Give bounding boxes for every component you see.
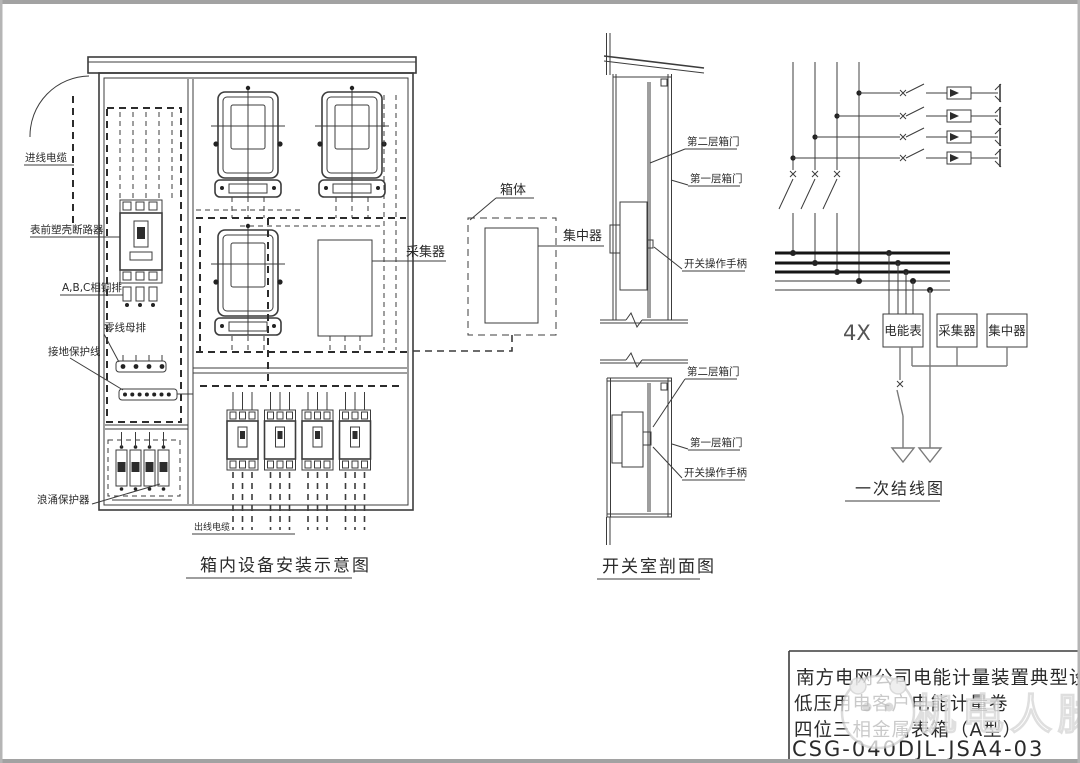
label-ground-wire: 接地保护线 [48, 345, 101, 358]
cad-drawing-canvas: 进线电缆 表前塑壳断路器 A,B,C相铜排 零线母排 接地保护线 浪涌保护器 出… [0, 0, 1080, 763]
label-collector-box: 采集器 [938, 323, 976, 338]
cabinet-installation-diagram: 进线电缆 表前塑壳断路器 A,B,C相铜排 零线母排 接地保护线 浪涌保护器 出… [24, 57, 446, 578]
label-concentrator-box: 集中器 [988, 323, 1026, 338]
caption-one-line: 一次结线图 [855, 479, 945, 498]
cabinet-labels: 进线电缆 表前塑壳断路器 A,B,C相铜排 零线母排 接地保护线 浪涌保护器 出… [24, 151, 446, 534]
spd-branches [790, 84, 1001, 167]
drawing-sheet: 进线电缆 表前塑壳断路器 A,B,C相铜排 零线母排 接地保护线 浪涌保护器 出… [0, 0, 1080, 763]
main-breaker-mccb [120, 200, 162, 307]
busbars [775, 250, 950, 293]
energy-meter-1 [211, 86, 285, 197]
comms-bus [912, 347, 1007, 366]
neutral-busbar [116, 355, 166, 372]
energy-meter-2 [315, 86, 389, 197]
meter-wiring-dashed [196, 95, 407, 386]
label-surge-protector: 浪涌保护器 [37, 493, 90, 506]
switch-room-section: 第二层箱门 第一层箱门 开关操作手柄 [597, 33, 747, 579]
phase-lines [779, 62, 859, 281]
caption-cabinet-diagram: 箱内设备安装示意图 [200, 556, 371, 576]
one-line-diagram: 4X 电能表 采集器 集中器 一次结线图 [775, 62, 1027, 501]
label-lower-handle: 开关操作手柄 [684, 466, 747, 479]
label-neutral-busbar: 零线母排 [104, 321, 146, 334]
label-outgoing-cable: 出线电缆 [194, 521, 230, 533]
outgoing-cables-dashed [233, 472, 365, 530]
title-line-1: 南方电网公司电能计量装置典型设计 [796, 668, 1080, 689]
label-concentrator: 集中器 [563, 228, 602, 244]
watermark-panda-eye-left [863, 703, 872, 712]
watermark-text: 机电人脉 [914, 690, 1080, 739]
label-collector: 采集器 [406, 244, 445, 260]
label-box-body: 箱体 [500, 182, 526, 198]
watermark-panda-ear-left [850, 678, 866, 694]
cable-channel-dashed [107, 108, 181, 422]
title-drawing-number: CSG-040DJL-JSA4-03 [792, 737, 1044, 761]
label-main-breaker: 表前塑壳断路器 [30, 223, 104, 236]
label-upper-handle: 开关操作手柄 [684, 257, 747, 270]
label-phase-busbar: A,B,C相铜排 [62, 281, 122, 294]
meter-outgoing-feeder [892, 347, 941, 462]
switch-room-upper-section: 第二层箱门 第一层箱门 开关操作手柄 [600, 33, 747, 327]
label-upper-first-door: 第一层箱门 [690, 172, 743, 185]
label-meter-box: 电能表 [884, 323, 922, 338]
label-incoming-cable: 进线电缆 [25, 151, 67, 164]
outgoing-breakers [227, 392, 371, 470]
switch-room-lower-section: 第二层箱门 第一层箱门 开关操作手柄 [600, 353, 747, 545]
watermark-panda-ear-right [890, 678, 906, 694]
label-lower-first-door: 第一层箱门 [690, 436, 743, 449]
energy-meter-3 [211, 224, 285, 335]
collector-box [318, 240, 372, 336]
label-upper-second-door: 第二层箱门 [687, 135, 740, 148]
watermark-panda-eye-right [885, 703, 894, 712]
caption-switch-room: 开关室剖面图 [602, 557, 716, 577]
surge-protector-unit [108, 432, 180, 500]
concentrator-detail: 箱体 集中器 [412, 182, 604, 351]
door-swing-arc [30, 76, 89, 137]
label-lower-second-door: 第二层箱门 [687, 365, 740, 378]
meter-taps [889, 253, 930, 448]
label-multiplier: 4X [843, 321, 871, 345]
image-frame [0, 0, 1080, 763]
